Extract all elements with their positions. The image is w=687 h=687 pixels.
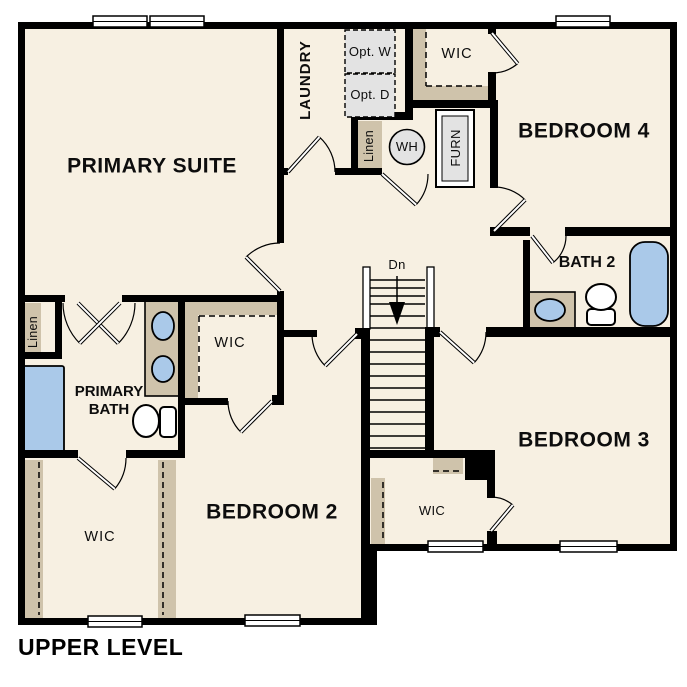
primary-sink-icon [152,312,174,340]
opt-dryer-label: Opt. D [344,87,396,103]
wall [487,531,497,544]
wall [405,100,498,108]
wall [487,450,495,498]
floor-level-title: UPPER LEVEL [18,634,183,661]
bath2-bathtub [630,242,668,326]
wall [488,22,496,34]
bath2-toilet-bowl [586,284,616,310]
wall [277,168,288,175]
linen-primary-label: Linen [26,316,40,348]
wall [277,295,284,405]
closet-shelf-band [185,302,277,315]
linen-hall-label: Linen [362,130,376,162]
wall [370,544,677,551]
room-label-wic-primary: WIC [84,529,115,545]
stairs-down-label: Dn [388,257,405,273]
room-label-bedroom3: BEDROOM 3 [518,427,650,452]
wall [490,108,498,188]
room-label-primary-suite: PRIMARY SUITE [67,153,237,178]
wall [670,22,677,551]
wall [361,328,370,625]
room-label-laundry: LAUNDRY [297,40,315,120]
primary-sink-icon [152,356,174,382]
room-label-primary-bath: PRIMARY BATH [54,383,164,419]
wall [178,398,228,405]
water-heater-label: WH [396,139,418,155]
wall [565,227,672,236]
room-label-wic-bedroom3: WIC [419,503,445,519]
stair-rail [363,267,370,329]
wall [425,328,434,458]
wall [523,240,530,334]
floor-plan: PRIMARY SUITE LAUNDRY Opt. W Opt. D WIC … [0,0,687,687]
wall [405,22,413,108]
closet-shelf-band [185,302,198,398]
room-label-bath2: BATH 2 [555,254,619,272]
room-label-wic-bedroom2: WIC [214,335,245,351]
wall [370,551,377,625]
opt-washer-label: Opt. W [344,44,396,60]
wall [18,450,78,458]
closet-shelf-band [25,460,43,618]
wall [178,295,185,458]
wall [488,72,496,108]
wall [18,22,25,625]
wall [351,115,358,175]
wall [126,450,185,458]
wall [18,295,65,302]
room-label-bedroom2: BEDROOM 2 [206,499,338,524]
bath2-toilet-tank [587,309,615,325]
room-label-wic-bedroom4: WIC [441,46,472,62]
furnace-label: FURN [448,129,464,166]
wall [272,395,284,405]
bath2-sink-icon [535,299,565,321]
room-label-bedroom4: BEDROOM 4 [518,118,650,143]
wall [55,302,62,358]
wall [277,330,317,337]
stair-rail [427,267,434,329]
wall [351,168,382,175]
wall [178,295,284,302]
floor-plan-drawing [0,0,687,687]
wall [277,22,284,243]
wall [486,327,672,337]
wall [18,618,377,625]
wall [18,352,62,359]
floor-area [22,548,373,622]
closet-shelf-band [158,460,176,618]
